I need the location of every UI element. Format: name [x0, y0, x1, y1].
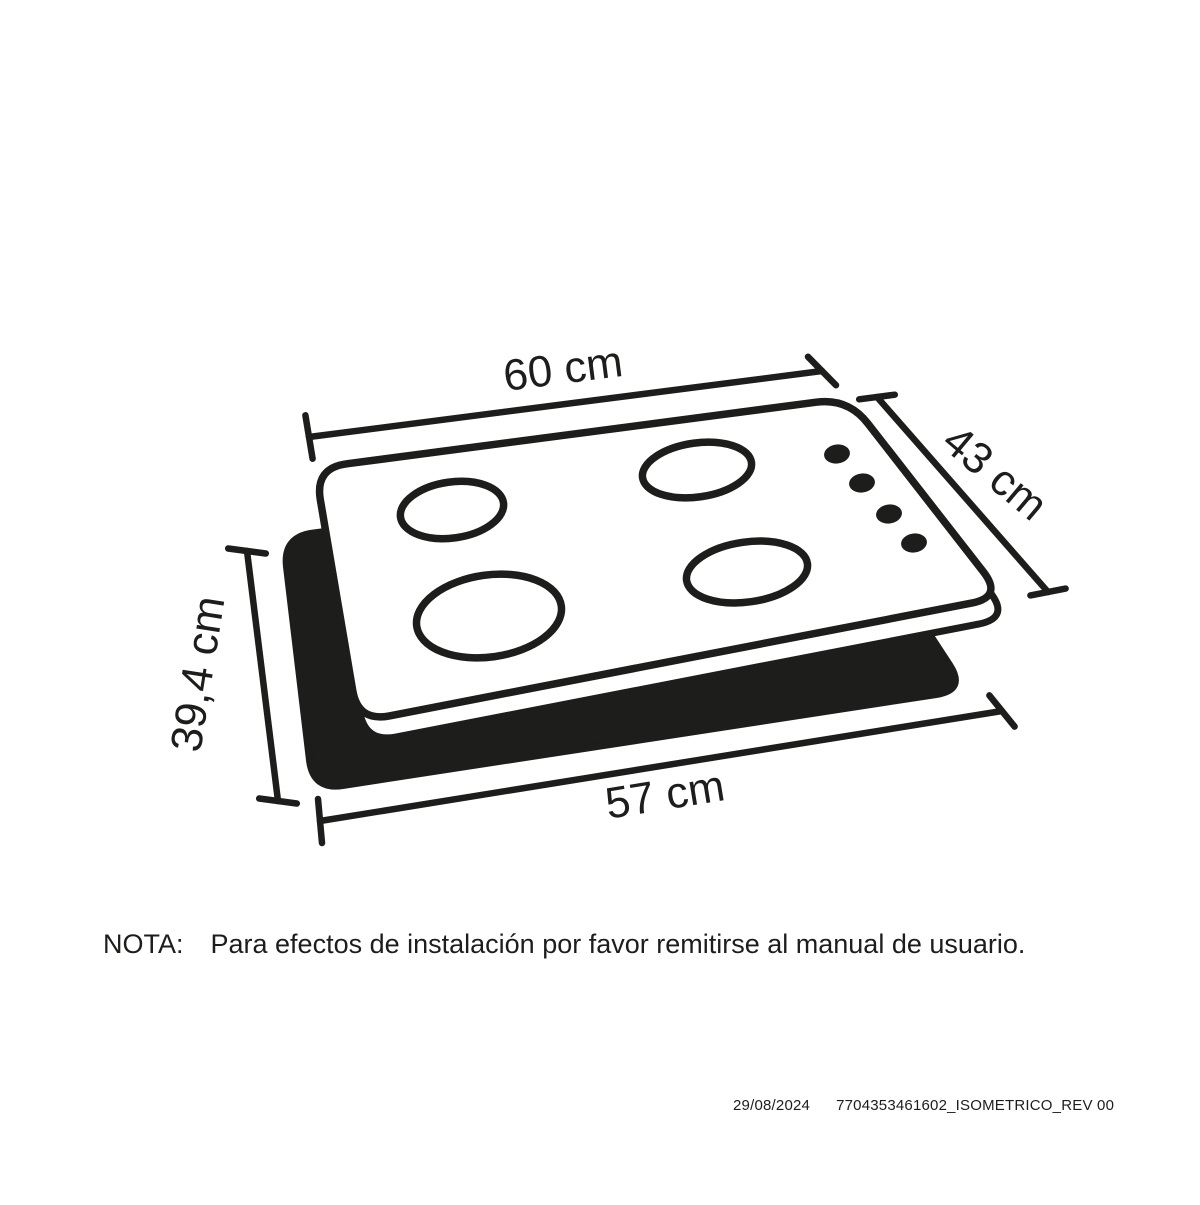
cooktop-isometric-diagram: 60 cm 43 cm 39,4 cm 57 cm	[0, 0, 1200, 1200]
note-text: Para efectos de instalación por favor re…	[211, 929, 1026, 960]
footer: 29/08/2024 7704353461602_ISOMETRICO_REV …	[733, 1097, 1114, 1114]
dimension-tick	[228, 549, 266, 554]
dimension-tick	[1030, 589, 1065, 596]
dimension-label-top-width: 60 cm	[500, 337, 625, 401]
dimension-tick	[859, 395, 895, 400]
installation-note: NOTA: Para efectos de instalación por fa…	[103, 929, 1025, 960]
dimension-tick	[305, 415, 312, 458]
dimension-tick	[318, 799, 322, 843]
dimension-line	[247, 551, 278, 801]
dimension-label-right-depth: 43 cm	[933, 416, 1056, 531]
note-prefix-label: NOTA:	[103, 929, 184, 960]
page-canvas: 60 cm 43 cm 39,4 cm 57 cm NOTA: Para efe…	[0, 0, 1200, 1200]
dimension-label-left-height: 39,4 cm	[162, 593, 235, 755]
dimension-tick	[259, 799, 297, 804]
footer-date: 29/08/2024	[733, 1097, 810, 1114]
footer-document-code: 7704353461602_ISOMETRICO_REV 00	[836, 1097, 1114, 1114]
